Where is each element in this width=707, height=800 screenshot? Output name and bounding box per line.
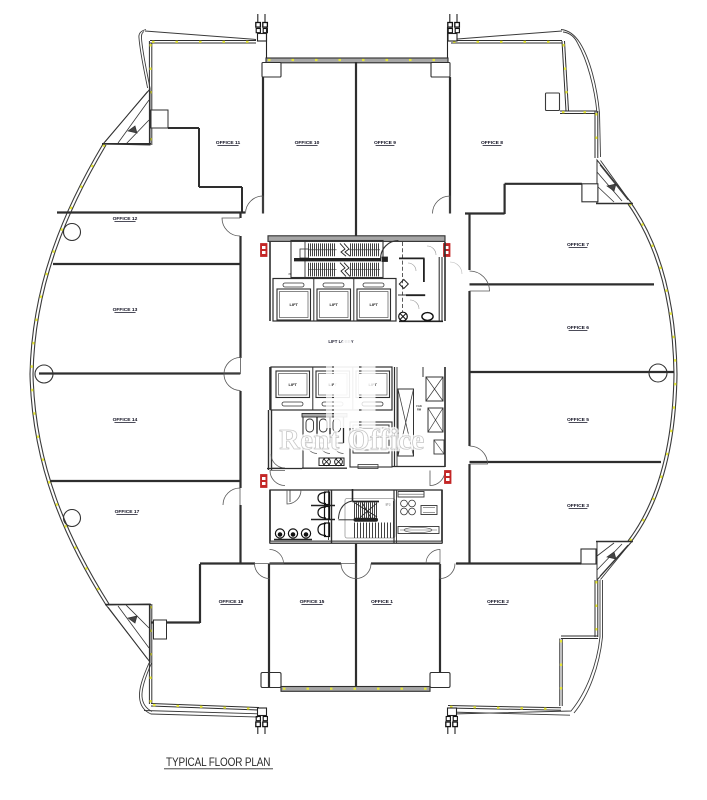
svg-text:ST-2: ST-2 <box>385 504 391 507</box>
svg-text:FAN: FAN <box>416 404 421 408</box>
svg-text:LIFT: LIFT <box>290 302 299 307</box>
svg-text:TYPICAL FLOOR PLAN: TYPICAL FLOOR PLAN <box>166 756 271 769</box>
svg-text:LIFT: LIFT <box>330 302 339 307</box>
svg-text:8R: 8R <box>288 273 291 276</box>
svg-text:LIFT: LIFT <box>289 382 298 387</box>
svg-text:Rent Office: Rent Office <box>279 425 425 456</box>
svg-text:LIFT: LIFT <box>370 302 379 307</box>
svg-text:RM: RM <box>417 408 421 412</box>
